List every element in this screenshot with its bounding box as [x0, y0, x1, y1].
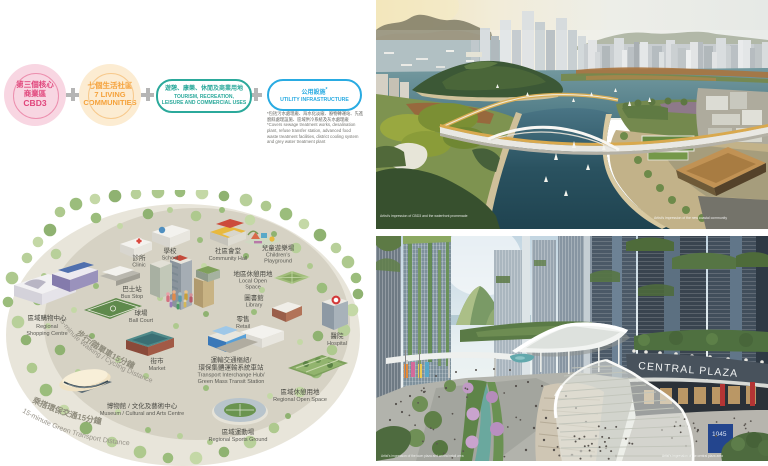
svg-text:Artist's impression of the cen: Artist's impression of the central plaza…: [662, 454, 723, 458]
svg-text:Retail: Retail: [236, 324, 250, 330]
svg-text:診所: 診所: [133, 253, 147, 262]
svg-text:醫院: 醫院: [331, 331, 345, 340]
svg-text:運輸交通樞紐/: 運輸交通樞紐/: [211, 355, 252, 364]
svg-text:區域購物中心: 區域購物中心: [28, 313, 68, 322]
svg-text:街市: 街市: [151, 356, 165, 365]
svg-text:Museum / Cultural and Arts Cen: Museum / Cultural and Arts Centre: [100, 411, 184, 417]
svg-text:1045: 1045: [712, 431, 727, 438]
svg-text:Library: Library: [246, 303, 263, 309]
svg-text:Regional Sports Ground: Regional Sports Ground: [208, 437, 267, 443]
svg-text:Shopping Centre: Shopping Centre: [26, 331, 67, 337]
svg-text:Bus Stop: Bus Stop: [121, 294, 143, 300]
svg-text:圖書館: 圖書館: [244, 293, 264, 302]
svg-text:Community Hall: Community Hall: [209, 256, 248, 262]
svg-text:Space: Space: [245, 285, 261, 291]
svg-text:Regional: Regional: [36, 324, 58, 330]
svg-text:Hospital: Hospital: [327, 341, 347, 347]
svg-text:Green Mass Transit Station: Green Mass Transit Station: [198, 379, 265, 385]
svg-text:Artist's impression of the tow: Artist's impression of the town plaza an…: [381, 454, 464, 458]
svg-text:Regional Open Space: Regional Open Space: [273, 397, 327, 403]
svg-text:Clinic: Clinic: [132, 263, 146, 269]
svg-text:Playground: Playground: [264, 259, 292, 265]
svg-text:環保集體運輸系統車站: 環保集體運輸系統車站: [199, 363, 265, 372]
svg-text:Artist's impression of CBD3 an: Artist's impression of CBD3 and the wate…: [380, 214, 468, 218]
svg-text:球場: 球場: [135, 308, 149, 317]
svg-text:School: School: [162, 256, 179, 262]
svg-text:零售: 零售: [237, 314, 250, 323]
svg-text:博物館 / 文化及藝術中心: 博物館 / 文化及藝術中心: [107, 401, 178, 410]
svg-text:兒童遊樂場: 兒童遊樂場: [262, 243, 295, 252]
svg-text:學校: 學校: [164, 246, 178, 255]
svg-text:Transport Interchange Hub/: Transport Interchange Hub/: [197, 373, 265, 379]
svg-text:地區休憩用地: 地區休憩用地: [234, 269, 274, 278]
svg-text:巴士站: 巴士站: [122, 284, 142, 293]
svg-text:Artist's impression of the new: Artist's impression of the new coastal c…: [654, 216, 727, 220]
svg-text:區域休憩用地: 區域休憩用地: [281, 387, 321, 396]
svg-text:Market: Market: [149, 366, 166, 372]
svg-text:Ball Court: Ball Court: [129, 318, 154, 324]
svg-text:社區會堂: 社區會堂: [215, 246, 242, 255]
svg-text:區域運動場: 區域運動場: [222, 427, 255, 436]
